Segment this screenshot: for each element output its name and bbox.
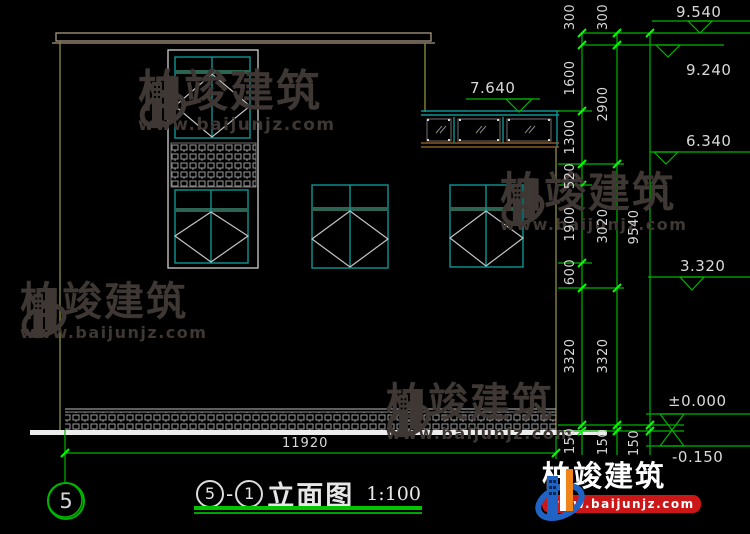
dim-middle-3320: 3320: [596, 326, 612, 386]
dim-middle-3020: 3020: [596, 196, 612, 256]
dim-overall-width: 11920: [282, 436, 328, 451]
roof-parapet: [52, 33, 435, 43]
dim-inner-300: 300: [563, 0, 579, 47]
title-underline-thick: [194, 506, 422, 510]
dim-outer-9540: 9540: [627, 197, 643, 257]
company-logo-icon: [534, 462, 586, 524]
watermark-building-icon: [500, 172, 546, 232]
canopy-glass-panels: [427, 119, 551, 141]
grid-axis-bubble: 5: [47, 482, 85, 520]
elev-canopy-wall: 6.340: [686, 132, 731, 150]
watermark-building-icon: [386, 383, 432, 443]
elev-canopy-top: 7.640: [470, 79, 515, 97]
title-underline-thin: [194, 512, 422, 514]
dim-middle-300: 300: [596, 0, 612, 47]
title-separator: -: [226, 482, 233, 506]
elev-mid-level: 3.320: [680, 257, 725, 275]
watermark-right: 柏竣建筑 www.baijunjz.com: [500, 172, 687, 233]
title-bubble-5: 5: [196, 480, 224, 508]
dim-inner-1600: 1600: [563, 48, 579, 108]
title-bubble-1: 1: [235, 480, 263, 508]
title-scale: 1:100: [366, 483, 421, 505]
grid-axis-number: 5: [59, 489, 72, 513]
company-logo: 柏竣建筑 www.baijunjz.com: [534, 462, 701, 513]
watermark-top: 柏竣建筑 www.baijunjz.com: [138, 70, 336, 134]
elev-floor: ±0.000: [668, 392, 727, 410]
dim-inner-3320: 3320: [563, 326, 579, 386]
canopy-strip: [421, 111, 559, 147]
elev-parapet: 9.240: [686, 61, 731, 79]
watermark-building-icon: [20, 282, 68, 344]
dim-inner-600: 600: [563, 242, 579, 302]
watermark-left: 柏竣建筑 www.baijunjz.com: [20, 282, 207, 341]
elevation-drawing-canvas: 300 1600 1300 520 1900 600 3320 150 300 …: [0, 0, 750, 534]
elev-roof-top: 9.540: [676, 3, 721, 21]
watermark-building-icon: [138, 70, 188, 134]
window-a: [312, 185, 388, 268]
dim-middle-2900: 2900: [596, 74, 612, 134]
watermark-bottom: 柏竣建筑 www.baijunjz.com: [386, 383, 573, 442]
